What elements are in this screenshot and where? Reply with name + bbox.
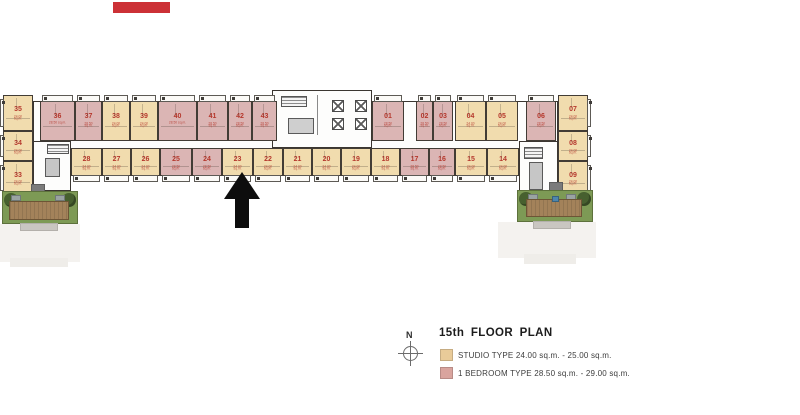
unit-02: 0228.50 sq.m. xyxy=(416,101,433,141)
unit-area-label: 28.50 sq.m. xyxy=(380,122,397,126)
unit-number: 40 xyxy=(159,113,196,120)
ac-condenser-icon xyxy=(164,177,167,180)
unit-number: 19 xyxy=(342,156,370,163)
unit-area-label: 28.50 sq.m. xyxy=(48,122,66,124)
unit-42: 4228.50 sq.m. xyxy=(228,101,252,141)
ac-condenser-icon xyxy=(433,177,436,180)
unit-14: 1424.00 sq.m. xyxy=(487,148,519,176)
unit-area-label: 28.50 sq.m. xyxy=(205,122,221,126)
unit-area-label: 24.00 sq.m. xyxy=(565,115,580,119)
plan-title: 15th FLOOR PLAN xyxy=(439,327,553,339)
unit-39: 3924.00 sq.m. xyxy=(130,101,158,141)
unit-area-label: 28.50 sq.m. xyxy=(167,122,187,124)
unit-area-label: 24.00 sq.m. xyxy=(137,122,151,126)
core-service-room xyxy=(288,118,314,134)
ac-condenser-icon xyxy=(459,97,462,100)
unit-number: 33 xyxy=(4,172,32,179)
unit-area-label: 24.00 sq.m. xyxy=(348,166,363,170)
ac-condenser-icon xyxy=(196,177,199,180)
unit-05: 0524.00 sq.m. xyxy=(486,101,518,141)
balcony xyxy=(488,95,516,102)
unit-20: 2024.00 sq.m. xyxy=(312,148,341,176)
unit-area-label: 28.50 sq.m. xyxy=(438,122,448,126)
unit-number: 27 xyxy=(103,156,130,163)
unit-number: 22 xyxy=(254,156,282,163)
left-stairs xyxy=(47,144,69,154)
unit-21: 2124.00 sq.m. xyxy=(283,148,312,176)
elevator-icon xyxy=(355,100,367,112)
ac-condenser-icon xyxy=(459,177,462,180)
unit-area-label: 28.50 sq.m. xyxy=(199,166,214,170)
unit-area-label: 24.00 sq.m. xyxy=(10,115,25,119)
unit-number: 39 xyxy=(131,113,157,120)
balcony xyxy=(587,165,591,192)
balcony xyxy=(587,99,591,127)
unit-26: 2624.00 sq.m. xyxy=(131,148,160,176)
balcony xyxy=(0,135,4,157)
balcony xyxy=(162,175,190,182)
balcony xyxy=(285,175,310,182)
unit-area-label: 24.00 sq.m. xyxy=(109,166,124,170)
balcony xyxy=(528,95,554,102)
balcony xyxy=(0,99,4,127)
balcony xyxy=(42,95,73,102)
unit-number: 25 xyxy=(161,156,191,163)
balcony xyxy=(132,95,156,102)
unit-area-label: 24.00 sq.m. xyxy=(565,181,580,185)
ac-condenser-icon xyxy=(376,97,379,100)
balcony xyxy=(314,175,339,182)
unit-area-label: 24.00 sq.m. xyxy=(109,122,123,126)
left-wood-deck xyxy=(9,201,69,220)
unit-number: 03 xyxy=(434,113,452,120)
unit-area-label: 24.00 sq.m. xyxy=(494,122,511,126)
unit-number: 38 xyxy=(103,113,129,120)
ac-condenser-icon xyxy=(287,177,290,180)
service-core xyxy=(272,90,372,148)
unit-area-label: 28.50 sq.m. xyxy=(168,166,185,170)
unit-25: 2528.50 sq.m. xyxy=(160,148,192,176)
unit-27: 2724.00 sq.m. xyxy=(102,148,131,176)
unit-43: 4328.50 sq.m. xyxy=(252,101,277,141)
ac-condenser-icon xyxy=(162,97,165,100)
unit-number: 07 xyxy=(559,106,587,113)
floor-plan-page: 3628.50 sq.m.3728.50 sq.m.3824.00 sq.m.3… xyxy=(0,0,800,415)
elevator-icon xyxy=(355,118,367,130)
unit-area-label: 24.00 sq.m. xyxy=(378,166,393,170)
ac-condenser-icon xyxy=(106,97,109,100)
unit-38: 3824.00 sq.m. xyxy=(102,101,130,141)
ac-condenser-icon xyxy=(530,97,533,100)
compass-circle xyxy=(403,346,418,361)
balcony xyxy=(104,95,128,102)
balcony xyxy=(77,95,100,102)
ac-condenser-icon xyxy=(316,177,319,180)
balcony xyxy=(0,165,4,191)
elevator-icon xyxy=(332,118,344,130)
unit-number: 15 xyxy=(456,156,486,163)
balcony xyxy=(435,95,451,102)
unit-number: 01 xyxy=(373,113,403,120)
ac-condenser-icon xyxy=(135,177,138,180)
unit-area-label: 24.00 sq.m. xyxy=(565,150,580,154)
unit-number: 09 xyxy=(559,172,587,179)
left-sky-garden xyxy=(2,191,78,224)
ac-condenser-icon xyxy=(589,101,592,104)
unit-number: 35 xyxy=(4,106,32,113)
balcony xyxy=(160,95,195,102)
ac-condenser-icon xyxy=(375,177,378,180)
unit-area-label: 24.00 sq.m. xyxy=(260,166,275,170)
unit-33: 3324.00 sq.m. xyxy=(3,161,33,195)
unit-area-label: 24.00 sq.m. xyxy=(10,181,25,185)
unit-08: 0824.00 sq.m. xyxy=(558,131,588,161)
balcony xyxy=(254,95,275,102)
unit-area-label: 28.50 sq.m. xyxy=(258,122,271,126)
unit-number: 42 xyxy=(229,113,251,120)
unit-area-label: 28.50 sq.m. xyxy=(435,166,448,170)
unit-number: 02 xyxy=(417,113,432,120)
balcony xyxy=(199,95,226,102)
unit-number: 17 xyxy=(401,156,428,163)
ac-condenser-icon xyxy=(79,97,82,100)
ac-condenser-icon xyxy=(437,97,440,100)
unit-04: 0424.00 sq.m. xyxy=(455,101,486,141)
unit-16: 1628.50 sq.m. xyxy=(429,148,455,176)
balcony xyxy=(587,135,591,157)
ac-condenser-icon xyxy=(2,101,5,104)
right-garden-step xyxy=(533,221,571,229)
balcony xyxy=(402,175,427,182)
ac-condenser-icon xyxy=(404,177,407,180)
unit-37: 3728.50 sq.m. xyxy=(75,101,102,141)
balcony xyxy=(104,175,129,182)
lower-floor-ghost-left-2 xyxy=(10,258,68,267)
lower-floor-ghost-right-2 xyxy=(524,254,576,264)
right-sky-garden xyxy=(517,190,593,222)
balcony xyxy=(133,175,158,182)
ac-condenser-icon xyxy=(589,167,592,170)
unit-number: 14 xyxy=(488,156,518,163)
ac-condenser-icon xyxy=(345,177,348,180)
unit-area-label: 28.50 sq.m. xyxy=(407,166,422,170)
right-shaft xyxy=(529,162,543,190)
unit-41: 4128.50 sq.m. xyxy=(197,101,228,141)
unit-number: 16 xyxy=(430,156,454,163)
unit-pointer-arrow-stem xyxy=(235,198,249,228)
legend-item-studio: STUDIO TYPE 24.00 sq.m. - 25.00 sq.m. xyxy=(440,349,612,361)
unit-36: 3628.50 sq.m. xyxy=(40,101,75,141)
unit-19: 1924.00 sq.m. xyxy=(341,148,371,176)
unit-area-label: 28.50 sq.m. xyxy=(82,122,96,126)
unit-18: 1824.00 sq.m. xyxy=(371,148,400,176)
ac-condenser-icon xyxy=(2,137,5,140)
balcony xyxy=(194,175,220,182)
unit-area-label: 28.50 sq.m. xyxy=(533,122,548,126)
one-bedroom-label: 1 BEDROOM TYPE 28.50 sq.m. - 29.00 sq.m. xyxy=(458,369,630,378)
unit-number: 36 xyxy=(41,113,74,120)
unit-17: 1728.50 sq.m. xyxy=(400,148,429,176)
unit-number: 43 xyxy=(253,113,276,120)
unit-35: 3524.00 sq.m. xyxy=(3,95,33,131)
unit-area-label: 24.00 sq.m. xyxy=(138,166,153,170)
studio-label: STUDIO TYPE 24.00 sq.m. - 25.00 sq.m. xyxy=(458,351,612,360)
unit-number: 05 xyxy=(487,113,517,120)
ac-condenser-icon xyxy=(2,167,5,170)
core-partition xyxy=(317,95,318,135)
balcony xyxy=(343,175,369,182)
ac-condenser-icon xyxy=(256,97,259,100)
unit-area-label: 28.50 sq.m. xyxy=(234,122,246,126)
unit-area-label: 24.00 sq.m. xyxy=(463,122,479,126)
legend-item-one-bedroom: 1 BEDROOM TYPE 28.50 sq.m. - 29.00 sq.m. xyxy=(440,367,630,379)
unit-number: 24 xyxy=(193,156,221,163)
logo-redaction-box xyxy=(113,2,170,13)
ac-condenser-icon xyxy=(589,137,592,140)
unit-area-label: 24.00 sq.m. xyxy=(10,150,25,154)
north-compass: N xyxy=(401,330,423,366)
unit-01: 0128.50 sq.m. xyxy=(372,101,404,141)
balcony xyxy=(374,95,402,102)
balcony xyxy=(230,95,250,102)
left-garden-step xyxy=(20,223,58,231)
ac-condenser-icon xyxy=(232,97,235,100)
unit-number: 18 xyxy=(372,156,399,163)
unit-number: 28 xyxy=(72,156,101,163)
unit-area-label: 24.00 sq.m. xyxy=(230,166,246,170)
ac-condenser-icon xyxy=(106,177,109,180)
ac-condenser-icon xyxy=(134,97,137,100)
balcony xyxy=(431,175,453,182)
balcony xyxy=(73,175,100,182)
one-bedroom-swatch xyxy=(440,367,453,379)
ac-condenser-icon xyxy=(490,97,493,100)
unit-number: 23 xyxy=(223,156,252,163)
unit-area-label: 28.50 sq.m. xyxy=(420,122,428,126)
core-stairs xyxy=(281,96,307,107)
balcony xyxy=(457,175,485,182)
unit-03: 0328.50 sq.m. xyxy=(433,101,453,141)
right-stairs xyxy=(524,147,543,159)
unit-number: 26 xyxy=(132,156,159,163)
unit-number: 21 xyxy=(284,156,311,163)
unit-number: 20 xyxy=(313,156,340,163)
pool-dot xyxy=(552,196,559,202)
ac-condenser-icon xyxy=(44,97,47,100)
unit-area-label: 24.00 sq.m. xyxy=(290,166,305,170)
unit-number: 06 xyxy=(527,113,555,120)
unit-number: 04 xyxy=(456,113,485,120)
balcony xyxy=(457,95,484,102)
unit-40: 4028.50 sq.m. xyxy=(158,101,197,141)
unit-area-label: 24.00 sq.m. xyxy=(319,166,334,170)
unit-24: 2428.50 sq.m. xyxy=(192,148,222,176)
ac-condenser-icon xyxy=(75,177,78,180)
unit-area-label: 24.00 sq.m. xyxy=(79,166,95,170)
ac-condenser-icon xyxy=(491,177,494,180)
ac-condenser-icon xyxy=(201,97,204,100)
north-label: N xyxy=(406,330,413,340)
unit-15: 1524.00 sq.m. xyxy=(455,148,487,176)
unit-area-label: 24.00 sq.m. xyxy=(463,166,480,170)
balcony xyxy=(373,175,398,182)
unit-34: 3424.00 sq.m. xyxy=(3,131,33,161)
ac-condenser-icon xyxy=(420,97,423,100)
left-shaft xyxy=(45,158,60,177)
elevator-icon xyxy=(332,100,344,112)
unit-number: 34 xyxy=(4,140,32,147)
balcony xyxy=(489,175,517,182)
unit-pointer-arrow-head xyxy=(224,172,260,199)
unit-28: 2824.00 sq.m. xyxy=(71,148,102,176)
unit-06: 0628.50 sq.m. xyxy=(526,101,556,141)
studio-swatch xyxy=(440,349,453,361)
unit-area-label: 24.00 sq.m. xyxy=(495,166,512,170)
unit-number: 41 xyxy=(198,113,227,120)
balcony xyxy=(418,95,431,102)
unit-number: 37 xyxy=(76,113,101,120)
unit-number: 08 xyxy=(559,140,587,147)
unit-07: 0724.00 sq.m. xyxy=(558,95,588,131)
